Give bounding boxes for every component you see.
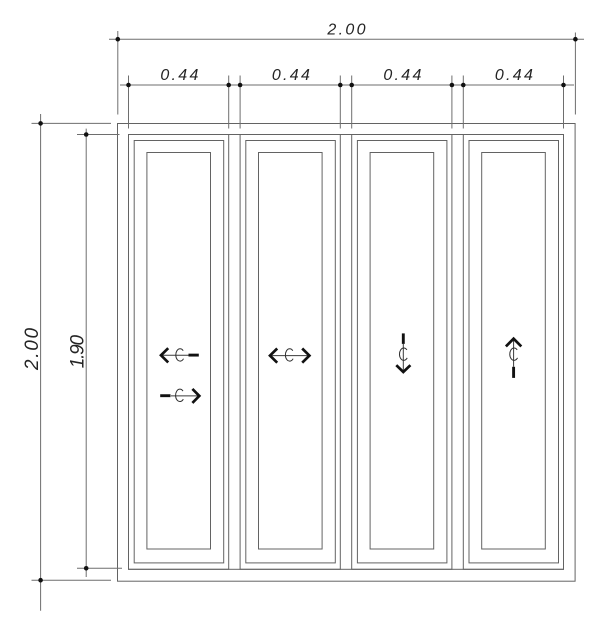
svg-text:0.44: 0.44 xyxy=(272,67,312,84)
svg-text:1.90: 1.90 xyxy=(68,334,89,368)
svg-text:2.00: 2.00 xyxy=(326,22,367,39)
svg-text:0.44: 0.44 xyxy=(495,67,535,84)
svg-text:0.44: 0.44 xyxy=(383,67,423,84)
svg-text:2.00: 2.00 xyxy=(22,326,43,371)
svg-text:0.44: 0.44 xyxy=(160,67,200,84)
